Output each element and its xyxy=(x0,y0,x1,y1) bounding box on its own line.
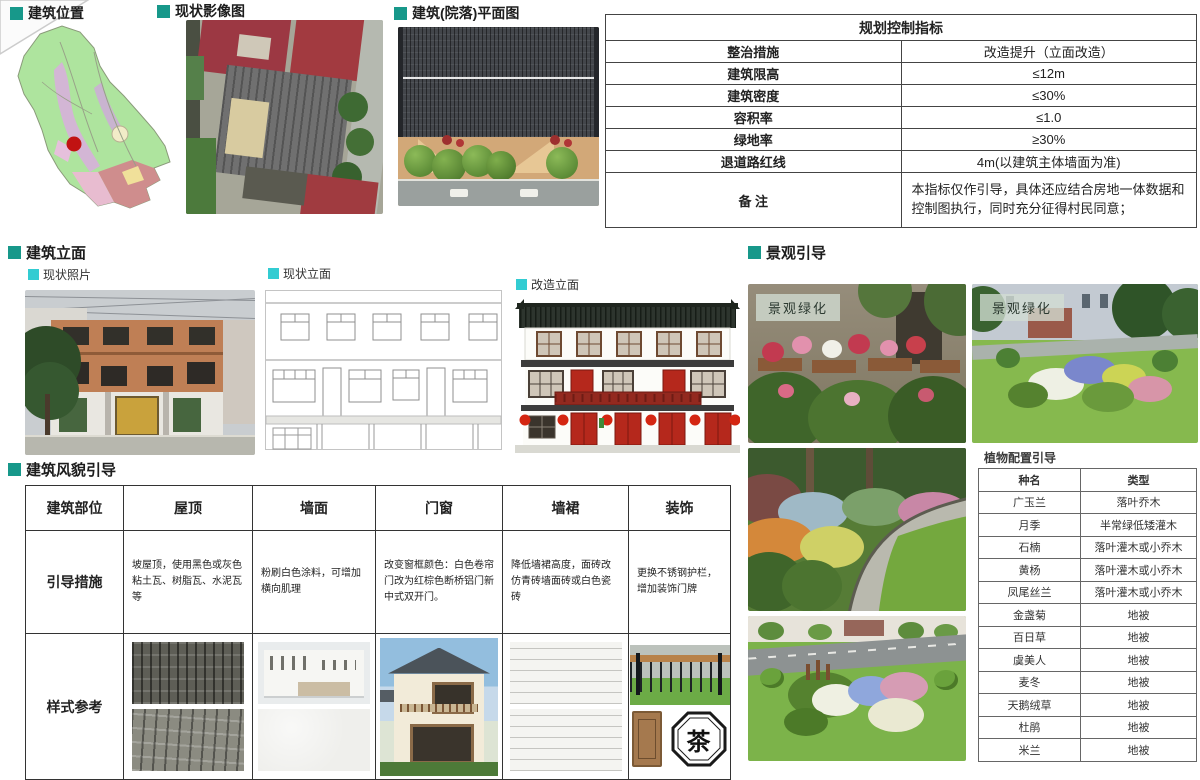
plant-col-header: 种名 xyxy=(979,469,1081,492)
plant-type: 落叶灌木或小乔木 xyxy=(1081,536,1197,559)
planning-row-label: 建筑密度 xyxy=(606,85,902,107)
table-row: 天鹅绒草地被 xyxy=(979,694,1197,717)
section-bullet-icon xyxy=(748,246,761,259)
plant-type: 落叶灌木或小乔木 xyxy=(1081,559,1197,582)
photo-caption-overlay: 景观绿化 xyxy=(980,294,1064,321)
plant-name: 米兰 xyxy=(979,739,1081,762)
planning-row-label: 退道路红线 xyxy=(606,151,902,173)
section-header-building-style: 建筑风貌引导 xyxy=(8,459,116,480)
subheader-current-elevation: 现状立面 xyxy=(268,265,331,282)
style-row-label: 样式参考 xyxy=(26,634,124,780)
plant-type: 地被 xyxy=(1081,604,1197,627)
plant-name: 黄杨 xyxy=(979,559,1081,582)
section-header-landscape-guidance: 景观引导 xyxy=(748,242,826,263)
table-row: 麦冬地被 xyxy=(979,671,1197,694)
section-title: 景观引导 xyxy=(766,242,826,263)
landscape-photo-lawn-garden: 景观绿化 xyxy=(972,284,1198,443)
metal-railing-photo xyxy=(630,645,730,705)
section-bullet-icon xyxy=(157,5,170,18)
subheader-current-photo: 现状照片 xyxy=(28,266,91,283)
subsection-title: 改造立面 xyxy=(531,276,579,293)
section-title: 现状影像图 xyxy=(175,1,245,21)
plant-type: 地被 xyxy=(1081,739,1197,762)
location-map xyxy=(2,22,178,220)
plant-name: 凤尾丝兰 xyxy=(979,581,1081,604)
table-row: 黄杨落叶灌木或小乔木 xyxy=(979,559,1197,582)
planning-row-label: 容积率 xyxy=(606,107,902,129)
courtyard-roof-plan xyxy=(398,27,599,206)
style-col-header: 墙裙 xyxy=(503,486,629,531)
plant-config-header: 植物配置引导 xyxy=(984,449,1056,466)
planning-row-value: 改造提升（立面改造） xyxy=(901,41,1197,63)
current-condition-photo xyxy=(25,290,255,455)
subsection-bullet-icon xyxy=(28,269,39,280)
plant-name: 天鹅绒草 xyxy=(979,694,1081,717)
planning-row-label: 整治措施 xyxy=(606,41,902,63)
aerial-photo xyxy=(186,20,383,214)
plant-name: 虞美人 xyxy=(979,649,1081,672)
planning-table-title: 规划控制指标 xyxy=(606,15,1197,41)
landscape-photo-flower-wall: 景观绿化 xyxy=(748,284,966,443)
planning-row-label: 建筑限高 xyxy=(606,63,902,85)
plant-type: 落叶乔木 xyxy=(1081,491,1197,514)
plant-name: 石楠 xyxy=(979,536,1081,559)
section-header-current-imagery: 现状影像图 xyxy=(157,1,245,21)
subsection-bullet-icon xyxy=(516,279,527,290)
planning-remark-value: 本指标仅作引导，具体还应结合房地一体数据和控制图执行，同时充分征得村民同意； xyxy=(901,173,1197,228)
planning-control-table: 规划控制指标 整治措施 改造提升（立面改造） 建筑限高 ≤12m 建筑密度 ≤3… xyxy=(605,14,1197,228)
plant-col-header: 类型 xyxy=(1081,469,1197,492)
style-col-header: 屋顶 xyxy=(124,486,253,531)
style-row-label: 引导措施 xyxy=(26,531,124,634)
section-header-building-elevation: 建筑立面 xyxy=(8,242,86,263)
plant-config-table: 种名 类型 广玉兰落叶乔木 月季半常绿低矮灌木 石楠落叶灌木或小乔木 黄杨落叶灌… xyxy=(978,468,1197,762)
plant-name: 麦冬 xyxy=(979,671,1081,694)
roof-tile-photo-2 xyxy=(132,709,244,771)
planning-row-value: ≤12m xyxy=(901,63,1197,85)
table-row: 百日草地被 xyxy=(979,626,1197,649)
plant-type: 地被 xyxy=(1081,626,1197,649)
style-col-header: 建筑部位 xyxy=(26,486,124,531)
landscape-photo-garden-path xyxy=(748,448,966,611)
plant-name: 月季 xyxy=(979,514,1081,537)
white-brick-texture-photo-1 xyxy=(510,642,622,704)
section-bullet-icon xyxy=(394,7,407,20)
white-brick-texture-photo-2 xyxy=(510,709,622,771)
map-marker-icon xyxy=(67,137,82,152)
plant-type: 半常绿低矮灌木 xyxy=(1081,514,1197,537)
planning-row-value: 4m(以建筑主体墙面为准) xyxy=(901,151,1197,173)
subsection-bullet-icon xyxy=(268,268,279,279)
table-row: 石楠落叶灌木或小乔木 xyxy=(979,536,1197,559)
section-header-building-plan: 建筑(院落)平面图 xyxy=(394,3,519,23)
plant-name: 杜鹃 xyxy=(979,716,1081,739)
section-bullet-icon xyxy=(8,246,21,259)
new-chinese-house-photo xyxy=(380,638,498,776)
plant-type: 地被 xyxy=(1081,671,1197,694)
table-row: 月季半常绿低矮灌木 xyxy=(979,514,1197,537)
section-bullet-icon xyxy=(10,7,23,20)
car-icon xyxy=(450,189,468,197)
photo-caption-overlay: 景观绿化 xyxy=(756,294,840,321)
table-row: 米兰地被 xyxy=(979,739,1197,762)
plant-type: 地被 xyxy=(1081,649,1197,672)
style-col-header: 墙面 xyxy=(253,486,376,531)
table-row: 虞美人地被 xyxy=(979,649,1197,672)
plant-type: 地被 xyxy=(1081,694,1197,717)
planning-row-label: 绿地率 xyxy=(606,129,902,151)
tea-character: 茶 xyxy=(670,710,728,768)
table-row: 广玉兰落叶乔木 xyxy=(979,491,1197,514)
planning-row-value: ≥30% xyxy=(901,129,1197,151)
planning-row-label: 备 注 xyxy=(606,173,902,228)
planning-row-value: ≤1.0 xyxy=(901,107,1197,129)
table-row: 凤尾丝兰落叶灌木或小乔木 xyxy=(979,581,1197,604)
subsection-title: 现状照片 xyxy=(43,266,91,283)
building-style-table: 建筑部位 屋顶 墙面 门窗 墙裙 装饰 引导措施 坡屋顶，使用黑色或灰色粘土瓦、… xyxy=(25,485,731,780)
plant-name: 百日草 xyxy=(979,626,1081,649)
style-col-header: 装饰 xyxy=(629,486,731,531)
section-title: 建筑风貌引导 xyxy=(26,459,116,480)
car-icon xyxy=(520,189,538,197)
landscape-photo-flower-bed xyxy=(748,616,966,761)
guidance-decoration: 更换不锈钢护栏，增加装饰门牌 xyxy=(629,531,731,634)
guidance-doors-windows: 改变窗框颜色：白色卷帘门改为红棕色断桥铝门新中式双开门。 xyxy=(376,531,503,634)
guidance-wainscot: 降低墙裙高度，面砖改仿青砖墙面砖或白色瓷砖 xyxy=(503,531,629,634)
plant-type: 落叶灌木或小乔木 xyxy=(1081,581,1197,604)
planning-row-value: ≤30% xyxy=(901,85,1197,107)
section-title: 建筑立面 xyxy=(26,242,86,263)
section-bullet-icon xyxy=(8,463,21,476)
guidance-wall: 粉刷白色涂料，可增加横向肌理 xyxy=(253,531,376,634)
roof-tile-photo-1 xyxy=(132,642,244,704)
table-row: 金盏菊地被 xyxy=(979,604,1197,627)
table-row: 杜鹃地被 xyxy=(979,716,1197,739)
current-elevation-drawing xyxy=(265,290,502,450)
style-col-header: 门窗 xyxy=(376,486,503,531)
plant-name: 广玉兰 xyxy=(979,491,1081,514)
plant-type: 地被 xyxy=(1081,716,1197,739)
subsection-title: 现状立面 xyxy=(283,265,331,282)
renovated-elevation-rendering xyxy=(515,296,740,453)
subheader-renovated-elevation: 改造立面 xyxy=(516,276,579,293)
section-header-building-location: 建筑位置 xyxy=(10,3,84,23)
white-wall-building-photo xyxy=(258,642,370,704)
section-title: 建筑位置 xyxy=(28,3,84,23)
octagonal-tea-window-photo: 茶 xyxy=(670,710,728,768)
white-plaster-texture-photo xyxy=(258,709,370,771)
guidance-roof: 坡屋顶，使用黑色或灰色粘土瓦、树脂瓦、水泥瓦等 xyxy=(124,531,253,634)
section-title: 建筑(院落)平面图 xyxy=(412,3,519,23)
wooden-door-plaque-photo xyxy=(632,711,662,767)
plant-name: 金盏菊 xyxy=(979,604,1081,627)
